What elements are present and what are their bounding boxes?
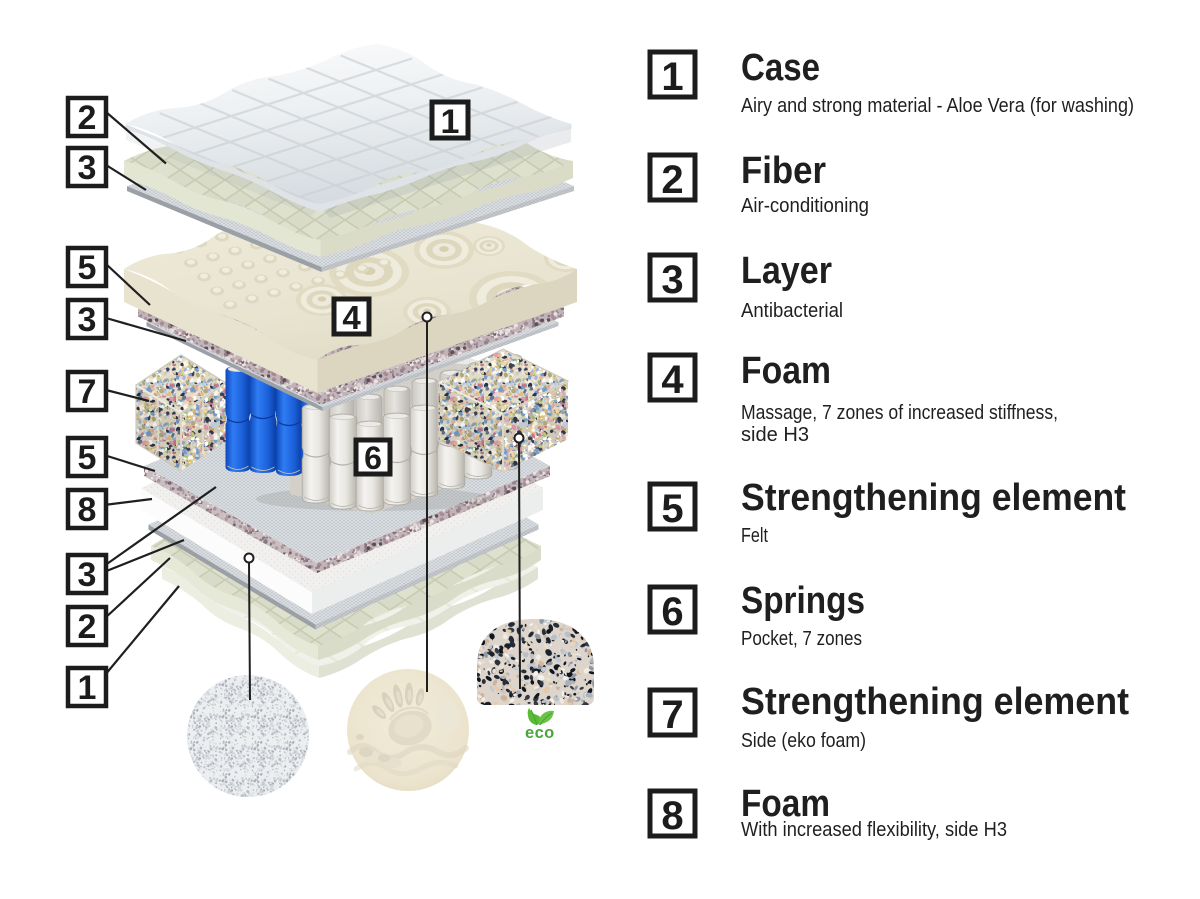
svg-text:8: 8 bbox=[661, 794, 683, 838]
svg-text:5: 5 bbox=[661, 487, 683, 531]
svg-text:6: 6 bbox=[661, 590, 683, 634]
svg-text:Strengthening element: Strengthening element bbox=[741, 477, 1126, 519]
svg-text:Case: Case bbox=[741, 47, 820, 89]
svg-text:2: 2 bbox=[78, 99, 97, 137]
svg-text:2: 2 bbox=[78, 608, 97, 646]
svg-text:Strengthening element: Strengthening element bbox=[741, 681, 1129, 723]
svg-text:3: 3 bbox=[661, 258, 683, 302]
svg-text:Springs: Springs bbox=[741, 580, 865, 622]
svg-text:Felt: Felt bbox=[741, 525, 768, 547]
svg-text:Pocket, 7 zones: Pocket, 7 zones bbox=[741, 628, 862, 650]
svg-text:1: 1 bbox=[441, 103, 460, 141]
svg-text:Fiber: Fiber bbox=[741, 150, 826, 192]
svg-text:4: 4 bbox=[342, 299, 361, 336]
svg-text:8: 8 bbox=[78, 491, 97, 529]
svg-text:6: 6 bbox=[364, 440, 382, 476]
svg-text:eco: eco bbox=[525, 724, 555, 742]
svg-text:With increased flexibility, si: With increased flexibility, side H3 bbox=[741, 819, 1007, 841]
svg-text:Side (eko foam): Side (eko foam) bbox=[741, 730, 866, 752]
svg-text:1: 1 bbox=[78, 669, 97, 707]
svg-text:2: 2 bbox=[661, 158, 683, 202]
svg-text:Massage, 7 zones of increased: Massage, 7 zones of increased stiffness, bbox=[741, 402, 1058, 424]
svg-text:7: 7 bbox=[661, 693, 683, 737]
svg-text:3: 3 bbox=[78, 556, 97, 594]
svg-text:5: 5 bbox=[78, 249, 97, 287]
svg-text:4: 4 bbox=[661, 358, 684, 402]
svg-text:Antibacterial: Antibacterial bbox=[741, 300, 843, 322]
svg-text:3: 3 bbox=[78, 149, 97, 187]
svg-text:Airy and strong material - Alo: Airy and strong material - Aloe Vera (fo… bbox=[741, 95, 1134, 117]
svg-text:Air-conditioning: Air-conditioning bbox=[741, 195, 869, 217]
svg-text:Layer: Layer bbox=[741, 250, 832, 292]
svg-text:Foam: Foam bbox=[741, 350, 831, 392]
svg-text:7: 7 bbox=[78, 373, 97, 411]
svg-text:side H3: side H3 bbox=[741, 424, 809, 446]
svg-text:5: 5 bbox=[78, 439, 97, 477]
svg-text:1: 1 bbox=[661, 55, 683, 99]
svg-text:3: 3 bbox=[78, 301, 97, 339]
